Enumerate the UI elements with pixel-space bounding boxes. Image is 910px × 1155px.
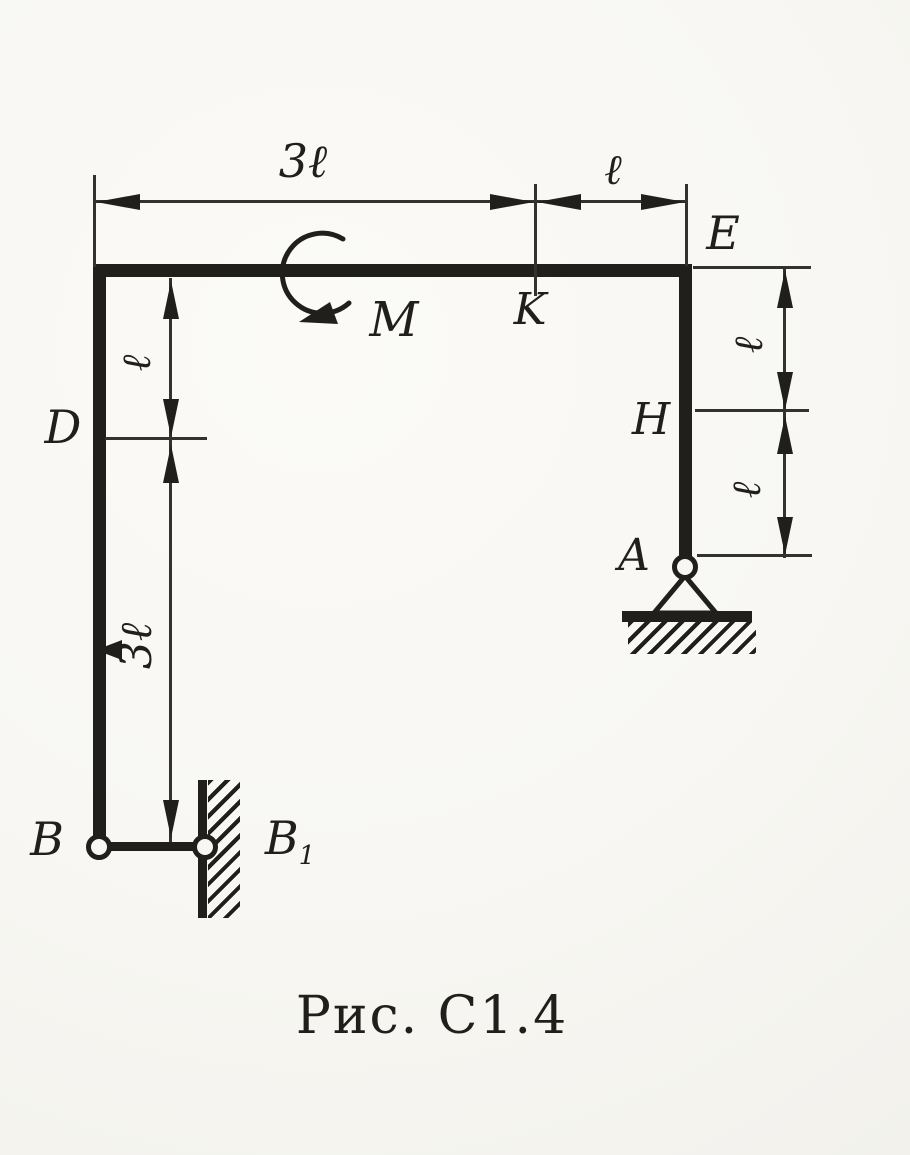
dimension-arrow-right-icon xyxy=(641,194,685,210)
figure-canvas: 3ℓ ℓ M K E ℓ ℓ H A ℓ 3ℓ D B B1 xyxy=(0,0,910,1155)
dimension-arrow-left-icon xyxy=(537,194,581,210)
point-label-b: B xyxy=(30,816,64,862)
dimension-label-l-right-lower: ℓ xyxy=(727,482,767,499)
point-label-b1-base: B xyxy=(265,811,299,865)
dimension-label-l-left: ℓ xyxy=(117,355,157,372)
dimension-arrow-right-icon xyxy=(490,194,534,210)
dimension-arrow-down-icon xyxy=(777,517,793,555)
dimension-label-l-right-upper: ℓ xyxy=(729,337,769,354)
point-label-e: E xyxy=(706,210,740,256)
dimension-label-l-top: ℓ xyxy=(604,149,622,191)
ground-hatching-a xyxy=(628,622,756,654)
frame-right-column xyxy=(679,264,692,560)
point-label-k: K xyxy=(514,288,547,332)
dimension-arrow-up-icon xyxy=(777,416,793,454)
dimension-arrow-up-icon xyxy=(777,270,793,308)
figure-caption: Рис. С1.4 xyxy=(296,990,568,1042)
frame-top-beam xyxy=(93,264,692,277)
moment-label: M xyxy=(369,296,418,344)
dimension-arrow-down-icon xyxy=(163,399,179,437)
hinge-b1 xyxy=(192,834,218,860)
dimension-arrow-down-icon xyxy=(777,372,793,410)
extension-line-e-right xyxy=(693,266,811,269)
extension-line-left xyxy=(93,175,96,267)
tick-line-a xyxy=(697,554,812,557)
point-label-b1: B1 xyxy=(265,815,315,869)
dimension-line-top xyxy=(95,200,687,203)
dimension-line-left xyxy=(169,278,172,842)
column-arrow-mark-icon xyxy=(96,640,122,660)
ground-line-a xyxy=(622,611,752,622)
point-label-h: H xyxy=(632,398,670,442)
dimension-arrow-left-icon xyxy=(96,194,140,210)
frame-left-column xyxy=(93,264,106,840)
link-bar-b-b1 xyxy=(108,842,200,851)
dimension-label-3l-top: 3ℓ xyxy=(279,138,327,184)
dimension-arrow-up-icon xyxy=(163,445,179,483)
moment-arc-icon xyxy=(255,205,385,335)
extension-line-e xyxy=(685,184,688,266)
pin-hinge-a xyxy=(672,554,698,580)
point-label-d: D xyxy=(45,404,82,450)
dimension-line-right xyxy=(783,267,786,558)
dimension-arrow-down-icon xyxy=(163,800,179,838)
dimension-arrow-up-icon xyxy=(163,281,179,319)
hinge-b xyxy=(86,834,112,860)
point-label-b1-subscript: 1 xyxy=(299,841,316,871)
tick-line-d xyxy=(105,437,207,440)
